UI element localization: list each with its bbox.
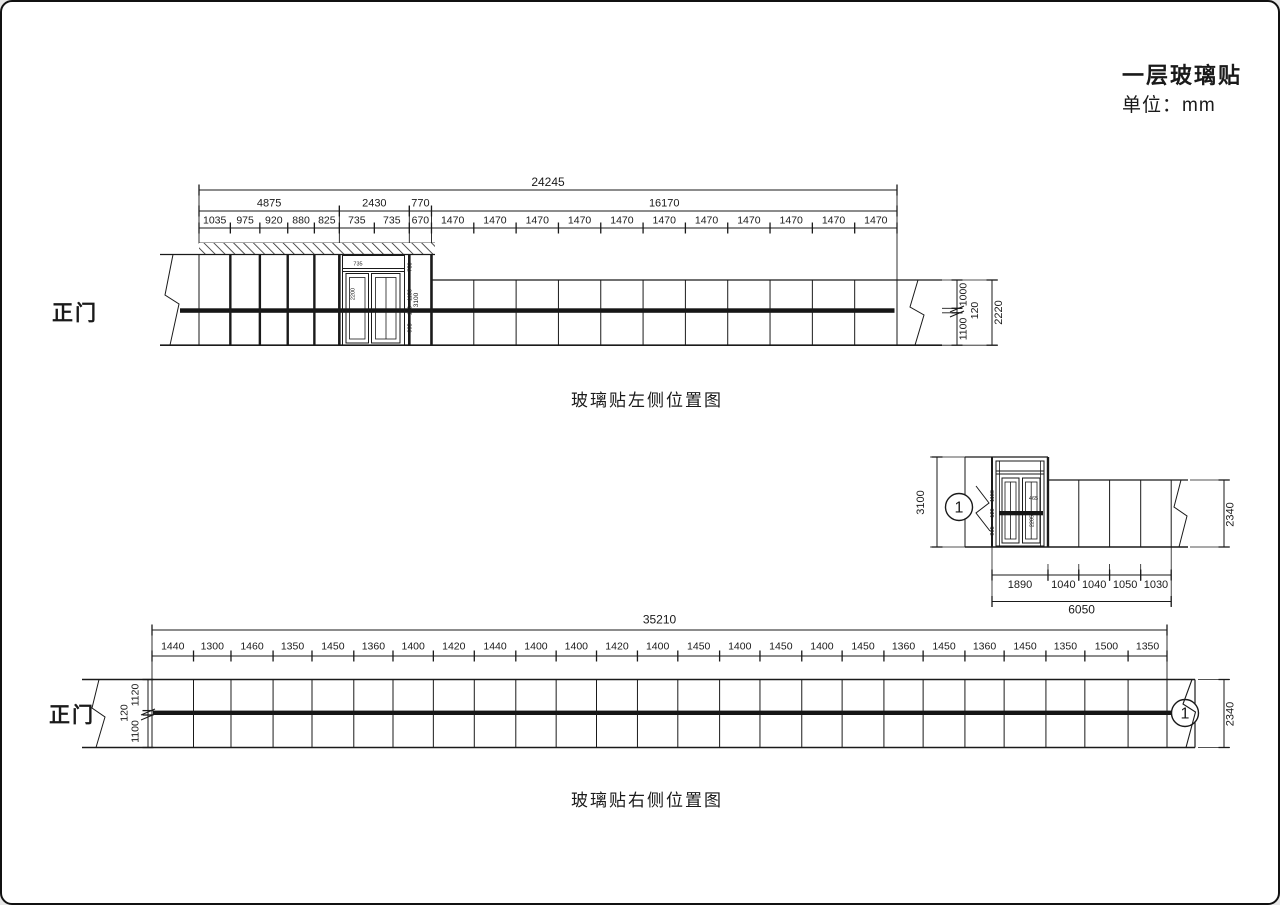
dim-seg: 1470 (483, 215, 507, 227)
leader-break (976, 486, 990, 531)
dim-seg: 735 (348, 215, 366, 227)
entrance-label-top: 正门 (52, 297, 98, 327)
dim-seg: 1440 (483, 641, 507, 653)
dim-seg: 1470 (441, 215, 465, 227)
dim-seg: 1470 (822, 215, 846, 227)
dim-seg: 1400 (401, 641, 425, 653)
dim-label: 1100 (130, 720, 142, 743)
dim-label: 120 (119, 704, 131, 722)
dim-seg: 1470 (610, 215, 634, 227)
door-pane (350, 278, 366, 340)
dim-seg: 1400 (565, 641, 589, 653)
dim-seg: 1420 (605, 641, 629, 653)
dim-seg: 1400 (728, 641, 752, 653)
detail-marker-number: 1 (1181, 706, 1190, 723)
door-dim: 995 (990, 526, 996, 535)
dim-seg: 1450 (851, 641, 875, 653)
door-dim: 2205 (1030, 515, 1036, 527)
drawing-sheet: 2424548752430770161701035975920880825735… (0, 0, 1280, 905)
dim-seg: 1890 (1008, 579, 1032, 591)
dim-seg: 1360 (973, 641, 997, 653)
break-line (910, 280, 924, 345)
dim-seg: 735 (383, 215, 401, 227)
dim-seg: 1040 (1082, 579, 1106, 591)
door-dim: 1150 (990, 490, 996, 502)
door-dim: 465 (1029, 496, 1038, 502)
dim-seg: 1035 (203, 215, 227, 227)
film-band (999, 511, 1043, 515)
dim-total: 3100 (915, 490, 927, 514)
door-dim: 750 (408, 262, 414, 271)
dim-seg: 1470 (568, 215, 592, 227)
dim-seg: 1030 (1144, 579, 1168, 591)
roof-hatch (199, 243, 435, 255)
dim-total: 35210 (643, 613, 677, 627)
dim-seg: 880 (292, 215, 310, 227)
dim-group: 2430 (362, 198, 386, 210)
dim-seg: 1350 (281, 641, 305, 653)
film-band (153, 711, 1172, 715)
dim-total: 2340 (1225, 502, 1237, 526)
dim-seg: 670 (412, 215, 430, 227)
dim-seg: 920 (265, 215, 283, 227)
dim-seg: 1450 (687, 641, 711, 653)
dim-seg: 1470 (526, 215, 550, 227)
dim-seg: 1350 (1136, 641, 1160, 653)
dim-seg: 1450 (1013, 641, 1037, 653)
door-dim: 735 (353, 262, 362, 268)
dim-seg: 1470 (695, 215, 719, 227)
dim-seg: 1400 (646, 641, 670, 653)
dim-seg: 825 (318, 215, 336, 227)
dim-seg: 1420 (442, 641, 466, 653)
dim-seg: 1400 (810, 641, 834, 653)
dim-label: 1100 (958, 318, 970, 341)
door-dim: 120 (990, 508, 996, 517)
dim-total: 2220 (993, 300, 1005, 324)
dim-seg: 1460 (240, 641, 264, 653)
dim-seg: 1440 (161, 641, 185, 653)
dim-seg: 1470 (864, 215, 888, 227)
sheet-title: 一层玻璃贴 (1122, 58, 1242, 90)
dim-group: 770 (411, 198, 429, 210)
detail-marker-number: 1 (955, 500, 964, 517)
dim-seg: 1470 (653, 215, 677, 227)
dim-seg: 1040 (1051, 579, 1075, 591)
right-position-view: 3521014401300146013501450136014001420144… (82, 613, 1237, 748)
break-line (165, 255, 179, 346)
dim-label: 120 (969, 302, 981, 320)
dim-seg: 1050 (1113, 579, 1137, 591)
dim-seg: 1470 (737, 215, 761, 227)
dim-group: 16170 (649, 198, 680, 210)
detail-view: 1150120995465220513100234018901040104010… (915, 457, 1237, 617)
cad-canvas: 2424548752430770161701035975920880825735… (2, 2, 1280, 905)
dim-group: 4875 (257, 198, 281, 210)
dim-label: 1000 (958, 283, 970, 307)
dim-seg: 1360 (892, 641, 916, 653)
dim-seg: 1450 (932, 641, 956, 653)
unit-label: 单位：mm (1122, 90, 1216, 117)
entrance-label-bottom: 正门 (49, 699, 95, 729)
door-dim: 2200 (351, 288, 357, 300)
dim-seg: 1450 (321, 641, 345, 653)
dim-label: 1120 (130, 684, 142, 707)
dim-seg: 975 (236, 215, 254, 227)
dim-total: 6050 (1068, 603, 1095, 617)
caption-right-view: 玻璃贴右侧位置图 (447, 786, 847, 811)
dim-seg: 1350 (1054, 641, 1078, 653)
dim-seg: 1500 (1095, 641, 1119, 653)
door-dim: 995 (408, 323, 414, 332)
dim-seg: 1300 (201, 641, 225, 653)
caption-left-view: 玻璃贴左侧位置图 (447, 386, 847, 411)
break-line (1174, 480, 1187, 547)
door-dim: 3100 (413, 292, 420, 307)
dim-seg: 1360 (362, 641, 386, 653)
dim-seg: 1470 (780, 215, 804, 227)
left-position-view: 2424548752430770161701035975920880825735… (160, 175, 1005, 345)
dim-seg: 1450 (769, 641, 793, 653)
dim-total: 2340 (1225, 702, 1237, 726)
dim-seg: 1400 (524, 641, 548, 653)
dim-total: 24245 (531, 175, 565, 189)
